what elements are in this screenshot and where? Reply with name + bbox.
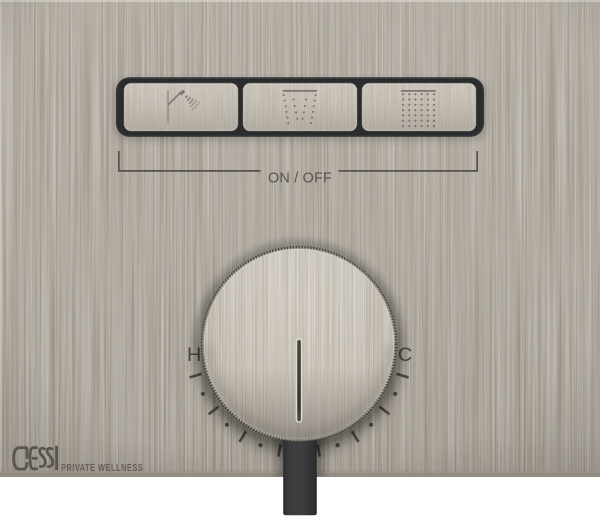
svg-text:ON / OFF: ON / OFF xyxy=(268,170,332,186)
svg-text:PRIVATE WELLNESS: PRIVATE WELLNESS xyxy=(61,462,143,473)
